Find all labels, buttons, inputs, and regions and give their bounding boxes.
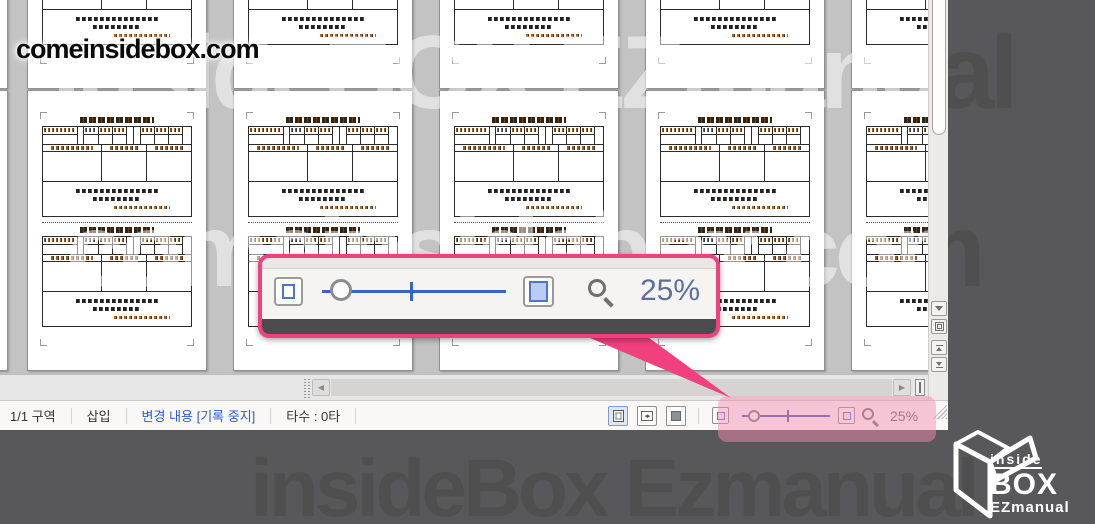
small-page-icon bbox=[843, 412, 851, 420]
zoom-slider-handle[interactable] bbox=[330, 279, 352, 301]
page-thumbnail bbox=[851, 0, 928, 89]
browse-object-button[interactable] bbox=[931, 319, 947, 334]
status-bar: 1/1 구역 삽입 변경 내용 [기록 중지] 타수 : 0타 ◂▸ bbox=[0, 400, 948, 430]
zoom-slider-tick bbox=[787, 410, 789, 422]
logo-text-box: BOX bbox=[990, 470, 1070, 500]
insert-mode-indicator[interactable]: 삽입 bbox=[72, 406, 126, 425]
zoom-fit-width-icon[interactable] bbox=[523, 276, 554, 307]
divider bbox=[698, 408, 699, 424]
watermark-text: InsideBOX EZmanual bbox=[948, 14, 1014, 133]
zoom-callout-popup: 25% bbox=[258, 254, 720, 338]
zoom-fit-page-button[interactable] bbox=[712, 407, 729, 424]
zoom-slider-tick bbox=[410, 282, 413, 301]
fit-width-icon: ◂▸ bbox=[641, 411, 653, 421]
square-icon bbox=[935, 322, 944, 331]
scroll-left-button[interactable]: ◀ bbox=[312, 379, 330, 396]
zoom-magnifier-icon[interactable] bbox=[862, 408, 874, 420]
divider bbox=[355, 408, 356, 424]
small-page-icon bbox=[717, 412, 725, 420]
section-indicator: 1/1 구역 bbox=[0, 406, 71, 425]
bottom-watermark: insideBox Ezmanual bbox=[250, 442, 975, 524]
page-thumbnail bbox=[233, 0, 413, 89]
zoom-fit-width-button[interactable] bbox=[838, 407, 855, 424]
fit-width-button[interactable]: ◂▸ bbox=[637, 406, 657, 426]
page-view-button[interactable] bbox=[608, 406, 628, 426]
logo-text-ezmanual: EZmanual bbox=[990, 500, 1070, 515]
word-processor-window: InsideBOX EZmanual comeinsidebox.com com… bbox=[0, 0, 948, 430]
track-changes-indicator[interactable]: 변경 내용 [기록 중지] bbox=[127, 406, 271, 425]
zoom-fit-page-icon[interactable] bbox=[274, 277, 303, 306]
scroll-down-button[interactable] bbox=[931, 301, 947, 316]
callout-dark-strip bbox=[262, 319, 716, 334]
page-thumbnail bbox=[851, 90, 928, 371]
horizontal-scroll-track[interactable] bbox=[331, 379, 892, 396]
page-view-icon bbox=[613, 410, 624, 422]
typing-count-indicator: 타수 : 0타 bbox=[271, 406, 355, 425]
page-thumbnail bbox=[439, 0, 619, 89]
logo-text-inside: inside bbox=[990, 452, 1042, 469]
scrollbar-grip[interactable] bbox=[304, 378, 310, 398]
zoom-magnifier-icon[interactable] bbox=[588, 279, 606, 297]
brand-logo: inside BOX EZmanual bbox=[938, 424, 1095, 524]
dark-watermark-layer: InsideBOX EZmanual comeinsidebox.com bbox=[948, 0, 1095, 430]
page-thumbnail bbox=[0, 90, 8, 371]
split-view-handle[interactable] bbox=[915, 379, 925, 396]
screenshot-root: InsideBOX EZmanual comeinsidebox.com com… bbox=[0, 0, 1095, 524]
full-screen-button[interactable] bbox=[666, 406, 686, 426]
zoom-percentage[interactable]: 25% bbox=[640, 274, 700, 308]
page-thumbnail bbox=[27, 90, 207, 371]
watermark-text: comeinsidebox.com bbox=[948, 192, 981, 311]
next-page-button[interactable] bbox=[931, 357, 947, 372]
horizontal-scrollbar[interactable]: ◀ ▶ bbox=[0, 374, 928, 400]
vertical-scrollbar[interactable] bbox=[928, 0, 948, 400]
callout-top-strip bbox=[262, 258, 716, 269]
view-zoom-controls: ◂▸ 25% bbox=[590, 401, 935, 430]
site-watermark: comeinsidebox.com bbox=[16, 34, 259, 65]
page-thumbnail bbox=[0, 0, 8, 89]
zoom-percentage[interactable]: 25% bbox=[890, 408, 918, 424]
full-screen-icon bbox=[671, 411, 681, 421]
zoom-slider-handle[interactable] bbox=[748, 410, 760, 422]
vertical-scroll-thumb[interactable] bbox=[932, 0, 946, 135]
page-thumbnail bbox=[645, 0, 825, 89]
previous-page-button[interactable] bbox=[931, 340, 947, 355]
scroll-right-button[interactable]: ▶ bbox=[893, 379, 911, 396]
